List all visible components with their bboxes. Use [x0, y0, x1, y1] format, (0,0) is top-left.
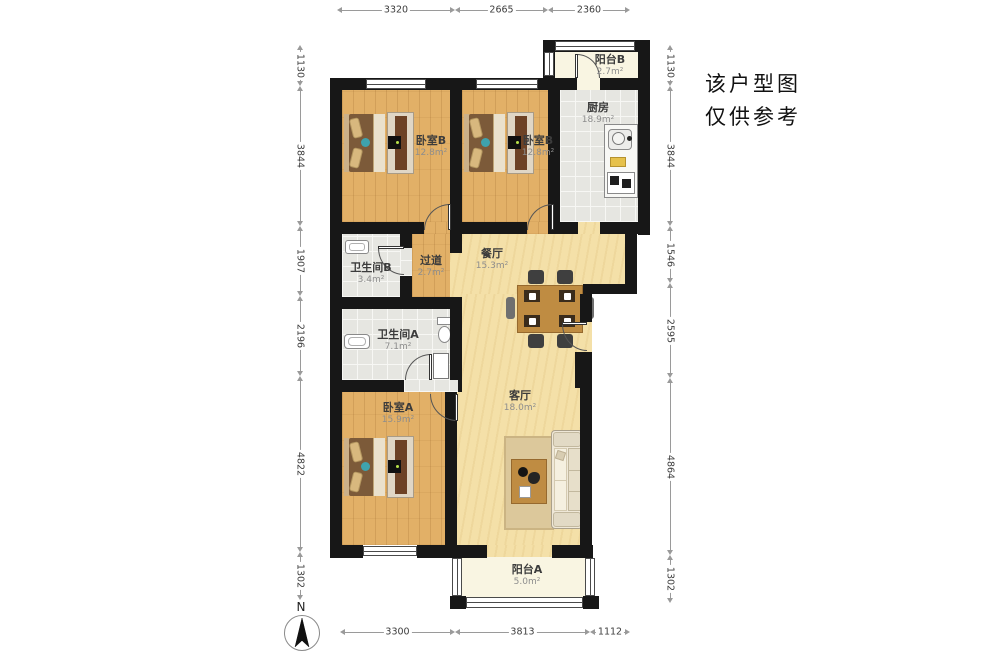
wall — [450, 90, 462, 222]
washbasin-icon — [345, 240, 369, 254]
wall — [330, 78, 342, 557]
door-leaf — [448, 204, 451, 230]
tv-light — [516, 141, 519, 144]
dim-value: 3320 — [382, 5, 410, 16]
dimension-right-4: 2595 — [662, 283, 678, 378]
dim-value: 4822 — [295, 450, 306, 478]
door-leaf — [551, 204, 554, 230]
wall — [552, 545, 593, 558]
dim-value: 1130 — [665, 51, 676, 79]
wall — [330, 297, 462, 309]
dimension-right-2: 3844 — [662, 86, 678, 226]
dim-value: 2196 — [295, 322, 306, 350]
plant-icon — [528, 472, 540, 484]
dimension-bottom-3: 1112 — [590, 624, 630, 640]
floor-gap — [576, 222, 600, 234]
dimension-left-2: 3844 — [292, 86, 308, 226]
dim-value: 2595 — [665, 316, 676, 344]
bed-sheet — [373, 438, 385, 496]
sofa-icon — [551, 430, 583, 529]
bed-icon — [464, 112, 534, 174]
tv-light — [396, 465, 399, 468]
duct-shaft — [433, 353, 449, 379]
wall — [342, 222, 424, 234]
wall — [417, 545, 487, 558]
dim-value: 3300 — [383, 627, 411, 638]
dimension-top-1: 3320 — [337, 2, 455, 18]
dining-chair-icon — [528, 334, 544, 348]
window — [544, 52, 554, 76]
dim-value: 3844 — [295, 142, 306, 170]
dimension-right-3: 1546 — [662, 226, 678, 283]
wall — [638, 40, 650, 235]
dimension-left-1: 1130 — [292, 45, 308, 86]
bed-sheet — [373, 114, 385, 172]
dimension-left-6: 1302 — [292, 552, 308, 600]
bathtub-bowl — [348, 337, 366, 346]
plate-icon — [529, 293, 536, 300]
dining-chair-icon — [557, 270, 573, 284]
floor-gap — [404, 380, 458, 392]
wall — [330, 545, 363, 558]
tv-icon — [388, 460, 401, 473]
tv-light — [396, 141, 399, 144]
door-leaf — [378, 246, 404, 249]
door-leaf — [455, 394, 458, 421]
wall — [600, 78, 638, 90]
dimension-right-6: 1302 — [662, 555, 678, 603]
burner-icon — [622, 179, 631, 188]
burner-icon — [610, 176, 619, 185]
floor-plan: 阳台B 2.7m² 厨房 18.9m² 卧室B 12.8m² 卧室B 12.8m… — [0, 0, 995, 654]
door-leaf — [575, 54, 578, 78]
dining-chair-icon — [528, 270, 544, 284]
compass-icon — [284, 615, 320, 651]
tv-icon — [388, 136, 401, 149]
dimension-right-1: 1130 — [662, 45, 678, 86]
window — [452, 558, 462, 596]
wall — [575, 352, 592, 388]
dim-value: 2360 — [575, 5, 603, 16]
wall — [450, 596, 466, 609]
dim-value: 3844 — [665, 142, 676, 170]
window — [585, 558, 595, 596]
floor-gap — [487, 545, 552, 557]
door-leaf — [562, 322, 587, 325]
sofa-armrest — [553, 512, 581, 527]
dimension-bottom-1: 3300 — [340, 624, 455, 640]
dimension-left-4: 2196 — [292, 296, 308, 376]
accent-pillow-icon — [481, 138, 490, 147]
tray-icon — [519, 486, 531, 498]
bed-icon — [344, 112, 414, 174]
dimension-right-5: 4864 — [662, 378, 678, 555]
window — [363, 546, 417, 556]
wall — [330, 380, 404, 392]
bathtub-icon — [344, 334, 370, 349]
wall — [450, 222, 462, 253]
accent-pillow-icon — [361, 138, 370, 147]
faucet-icon — [627, 136, 632, 141]
wall — [583, 284, 637, 294]
window — [476, 79, 538, 89]
wall — [450, 309, 462, 380]
floor-hallway — [412, 234, 450, 297]
kitchen-counter-icon — [604, 124, 638, 198]
window — [366, 79, 426, 89]
plate-icon — [529, 318, 536, 325]
wall — [583, 596, 599, 609]
floor-gap — [577, 78, 600, 90]
disclaimer-note: 该户型图 仅供参考 — [705, 68, 801, 133]
dim-value: 3813 — [508, 627, 536, 638]
north-label: N — [288, 600, 314, 614]
bed-icon — [344, 436, 414, 498]
window — [466, 597, 583, 608]
wall — [543, 78, 577, 90]
wall — [400, 276, 412, 297]
coffee-table-icon — [511, 459, 547, 504]
dining-side-chair-icon — [506, 297, 515, 319]
window — [555, 41, 635, 51]
wall — [552, 222, 578, 234]
kettle-icon — [518, 467, 528, 477]
dim-value: 1112 — [596, 627, 624, 638]
dimension-bottom-2: 3813 — [455, 624, 590, 640]
wall — [600, 222, 650, 234]
dim-value: 1130 — [295, 51, 306, 79]
floor-balcony-a — [462, 557, 585, 597]
dimension-left-5: 4822 — [292, 376, 308, 552]
dimension-top-2: 2665 — [455, 2, 548, 18]
washbasin-bowl — [349, 243, 365, 251]
dimension-top-3: 2360 — [548, 2, 630, 18]
disclaimer-line: 仅供参考 — [705, 101, 801, 134]
dim-value: 1302 — [295, 562, 306, 590]
sofa-armrest — [553, 432, 581, 447]
wall — [462, 222, 527, 234]
floor-gap — [450, 252, 462, 297]
wall — [580, 294, 592, 322]
dim-value: 1302 — [665, 565, 676, 593]
tv-icon — [508, 136, 521, 149]
cutting-board-icon — [610, 157, 626, 167]
north-arrow-icon — [285, 616, 319, 650]
wall — [458, 380, 462, 392]
bed-sheet — [493, 114, 505, 172]
dimension-left-3: 1907 — [292, 226, 308, 296]
dim-value: 1907 — [295, 247, 306, 275]
dim-value: 4864 — [665, 452, 676, 480]
wall — [580, 388, 592, 545]
accent-pillow-icon — [361, 462, 370, 471]
dim-value: 2665 — [487, 5, 515, 16]
door-leaf — [429, 354, 432, 380]
disclaimer-line: 该户型图 — [705, 68, 801, 101]
sink-basin — [612, 132, 625, 145]
dim-value: 1546 — [665, 240, 676, 268]
plate-icon — [564, 293, 571, 300]
